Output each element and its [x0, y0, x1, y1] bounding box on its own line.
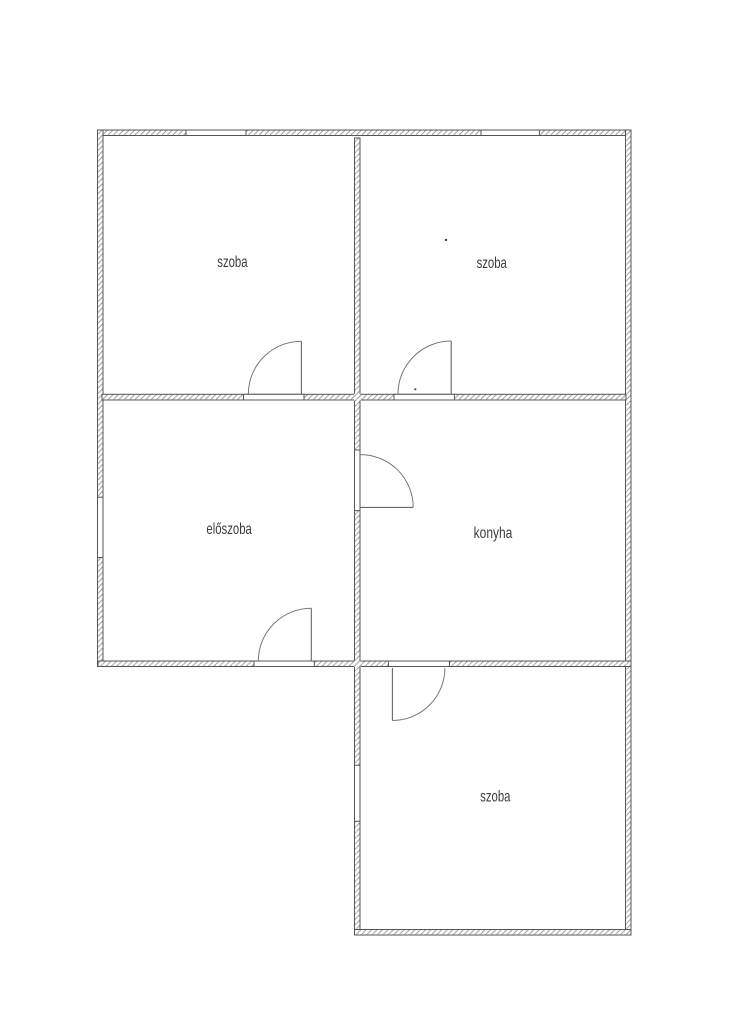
svg-text:előszoba: előszoba: [206, 519, 252, 537]
svg-text:szoba: szoba: [477, 253, 508, 271]
svg-text:szoba: szoba: [480, 787, 511, 805]
svg-text:konyha: konyha: [474, 523, 513, 541]
svg-text:szoba: szoba: [217, 252, 248, 270]
